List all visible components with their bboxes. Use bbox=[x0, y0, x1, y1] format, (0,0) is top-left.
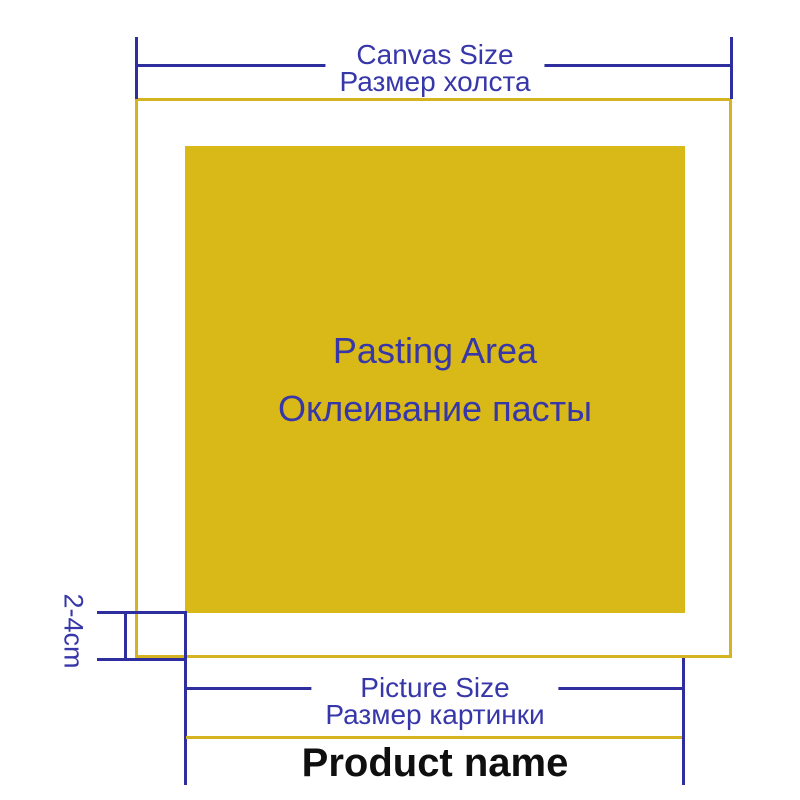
canvas-dim-tick-left bbox=[135, 37, 138, 99]
margin-bracket-bottom bbox=[97, 658, 187, 661]
canvas-dim-tick-right bbox=[730, 37, 733, 99]
canvas-size-label-en: Canvas Size bbox=[339, 41, 530, 68]
product-divider-line bbox=[186, 736, 682, 739]
product-name: Product name bbox=[302, 741, 569, 785]
margin-bracket-top bbox=[97, 611, 187, 614]
pasting-area-label-ru: Оклеивание пасты bbox=[278, 391, 592, 427]
picture-dim-tick-right bbox=[682, 658, 685, 785]
pasting-area-label-en: Pasting Area bbox=[333, 333, 537, 369]
pasting-area: Pasting Area Оклеивание пасты bbox=[185, 146, 685, 613]
size-diagram: Canvas Size Размер холста Pasting Area О… bbox=[0, 0, 800, 800]
margin-label: 2-4cm bbox=[60, 593, 87, 668]
picture-size-label: Picture Size Размер картинки bbox=[311, 673, 558, 729]
picture-size-label-en: Picture Size bbox=[325, 674, 544, 701]
margin-bracket-connector bbox=[124, 611, 127, 661]
canvas-size-label-ru: Размер холста bbox=[339, 68, 530, 95]
picture-size-label-ru: Размер картинки bbox=[325, 701, 544, 728]
picture-dim-tick-left bbox=[184, 611, 187, 785]
canvas-size-label: Canvas Size Размер холста bbox=[325, 40, 544, 96]
